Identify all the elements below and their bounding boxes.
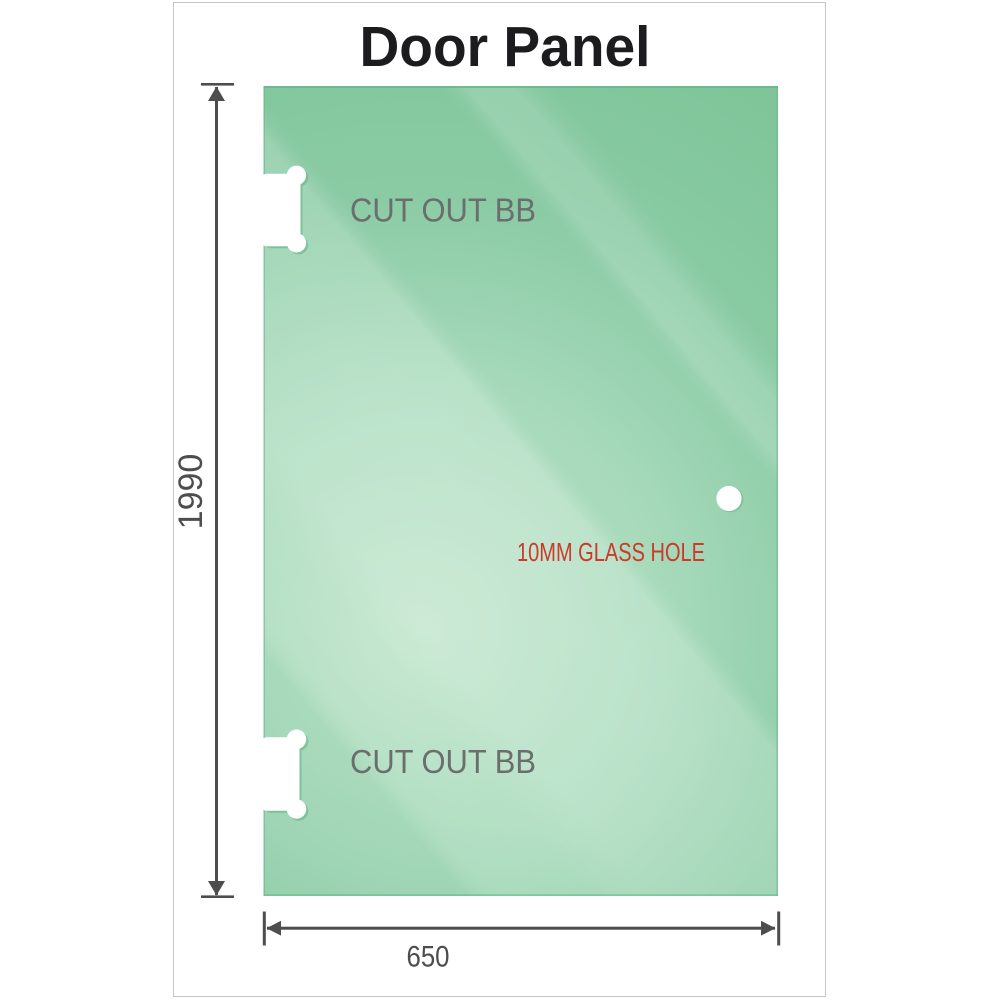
svg-text:Door Panel: Door Panel — [360, 15, 651, 79]
svg-text:1990: 1990 — [172, 454, 210, 530]
svg-text:CUT OUT BB: CUT OUT BB — [350, 192, 536, 229]
svg-text:10MM GLASS HOLE: 10MM GLASS HOLE — [517, 537, 705, 567]
svg-text:650: 650 — [407, 941, 450, 974]
svg-text:CUT OUT BB: CUT OUT BB — [350, 743, 536, 780]
